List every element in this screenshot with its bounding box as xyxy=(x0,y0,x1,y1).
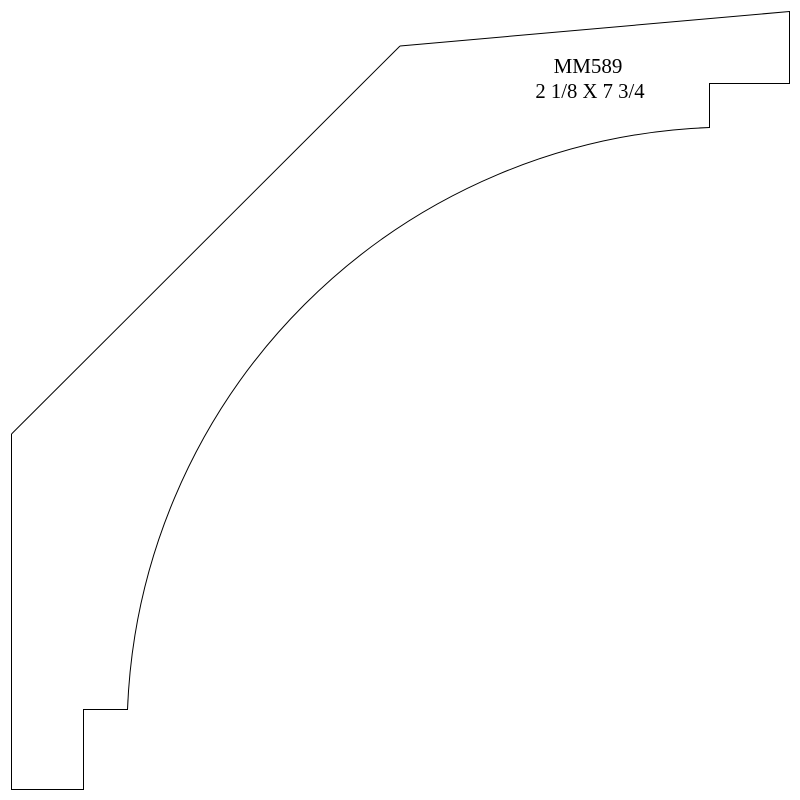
svg-text:2 1/8 X 7 3/4: 2 1/8 X 7 3/4 xyxy=(535,81,645,103)
svg-text:MM589: MM589 xyxy=(554,54,623,78)
